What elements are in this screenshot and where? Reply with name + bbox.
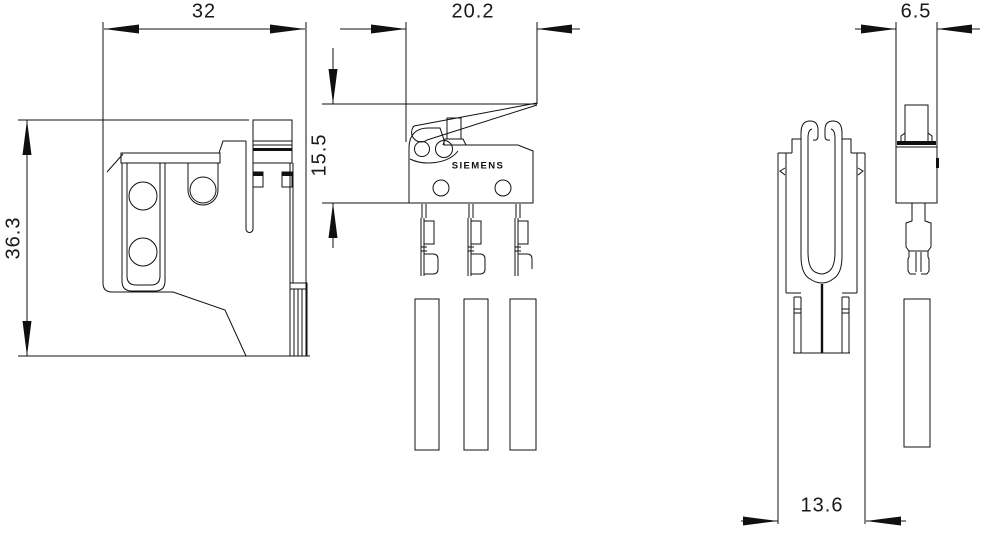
front-height-dim-label: 36.3 (3, 217, 26, 260)
housing-side-view-linework (778, 121, 865, 524)
terminal-pin (515, 204, 532, 276)
side-housing-width-dim-label: 13.6 (801, 495, 844, 518)
dim-13-6 (741, 517, 906, 526)
contact-bar (464, 299, 488, 450)
brand-label: SIEMENS (452, 161, 505, 172)
switch-height-dim-label: 15.5 (309, 134, 332, 177)
front-width-dim-label: 32 (192, 1, 216, 24)
dim-6-5 (855, 25, 980, 34)
contact-bar (904, 299, 930, 447)
terminal-pin (421, 204, 438, 276)
contact-bar (415, 299, 439, 450)
switch-front-view-linework (409, 103, 537, 450)
switch-side-view-linework (896, 105, 939, 447)
dim-20-2 (340, 25, 580, 34)
engineering-drawing-canvas: 32 20.2 6.5 36.3 15.5 13.6 SIEMENS (0, 0, 997, 536)
side-width-dim-label: 6.5 (901, 1, 932, 24)
terminal-pin (468, 204, 485, 276)
front-view-linework (18, 120, 310, 356)
switch-width-dim-label: 20.2 (452, 1, 495, 24)
contact-bar (510, 299, 536, 450)
dimension-annotations (23, 22, 981, 526)
dim-32 (104, 25, 305, 34)
